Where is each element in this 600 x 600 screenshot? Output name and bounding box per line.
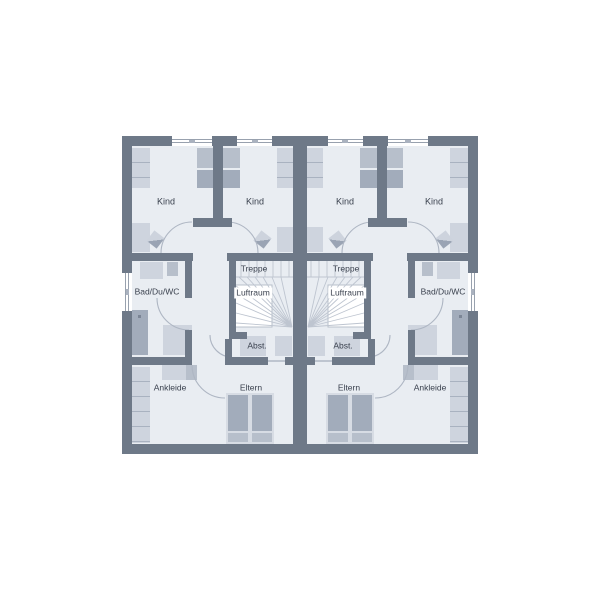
wall-storage-side [225, 339, 232, 365]
wall-bath-top [132, 253, 193, 261]
room-label-kind-a: Kind [157, 197, 175, 208]
cased-opening [268, 360, 285, 362]
wall-kind-divider-header [193, 218, 232, 227]
room-label-abstellraum: Abst. [247, 341, 266, 352]
door-arc-kind-left [161, 222, 192, 253]
room-label-bad: Bad/Du/WC [421, 287, 466, 298]
room-label-eltern: Eltern [240, 383, 262, 394]
wall-stair-corner [229, 332, 247, 339]
wall-storage-bottom-stub [307, 357, 315, 365]
room-label-treppe: Treppe [241, 264, 268, 275]
room-label-ankleide: Ankleide [154, 383, 187, 394]
wall-bath-side-lower [185, 330, 192, 357]
unit-left: Kind Kind Treppe Luftraum Bad/Du/WC Abst… [122, 136, 300, 454]
wall-kind-divider-header [368, 218, 407, 227]
wall-bath-side-lower [408, 330, 415, 357]
window-top-2 [237, 136, 272, 146]
outer-wall-bottom [300, 444, 478, 454]
unit-right: Kind Kind Treppe Luftraum Bad/Du/WC Abst… [300, 136, 478, 454]
cased-opening [315, 360, 332, 362]
door-arc-bathroom [157, 298, 189, 330]
wall-stair-corner [353, 332, 371, 339]
window-side [468, 273, 478, 311]
room-label-eltern: Eltern [338, 383, 360, 394]
room-label-abstellraum: Abst. [333, 341, 352, 352]
wall-storage-side [368, 339, 375, 365]
party-wall [293, 136, 300, 454]
room-label-ankleide: Ankleide [414, 383, 447, 394]
window-top-2 [328, 136, 363, 146]
outer-wall-bottom [122, 444, 300, 454]
wall-bath-side-upper [408, 261, 415, 298]
door-arc-bedroom [375, 365, 408, 398]
room-label-luftraum: Luftraum [234, 288, 272, 299]
window-top-1 [172, 136, 212, 146]
wall-storage-bottom-stub [285, 357, 293, 365]
room-label-bad: Bad/Du/WC [135, 287, 180, 298]
wall-kind-divider [377, 146, 387, 218]
window-side [122, 273, 132, 311]
wall-bath-bottom [132, 357, 192, 365]
wall-kind-divider [213, 146, 223, 218]
wall-bath-top [407, 253, 468, 261]
room-label-treppe: Treppe [333, 264, 360, 275]
wall-stair-top [227, 253, 293, 261]
window-top-1 [388, 136, 428, 146]
door-arc-bedroom [192, 365, 225, 398]
room-label-luftraum: Luftraum [328, 288, 366, 299]
room-label-kind-b: Kind [336, 197, 354, 208]
room-label-kind-a: Kind [425, 197, 443, 208]
floor-plan-canvas: Kind Kind Treppe Luftraum Bad/Du/WC Abst… [0, 0, 600, 600]
wall-stair-top [307, 253, 373, 261]
room-label-kind-b: Kind [246, 197, 264, 208]
wall-bath-side-upper [185, 261, 192, 298]
party-wall [300, 136, 307, 454]
door-arc-bathroom [411, 298, 443, 330]
door-arc-kind-left [408, 222, 439, 253]
wall-bath-bottom [408, 357, 468, 365]
floor-plan: Kind Kind Treppe Luftraum Bad/Du/WC Abst… [122, 136, 478, 454]
